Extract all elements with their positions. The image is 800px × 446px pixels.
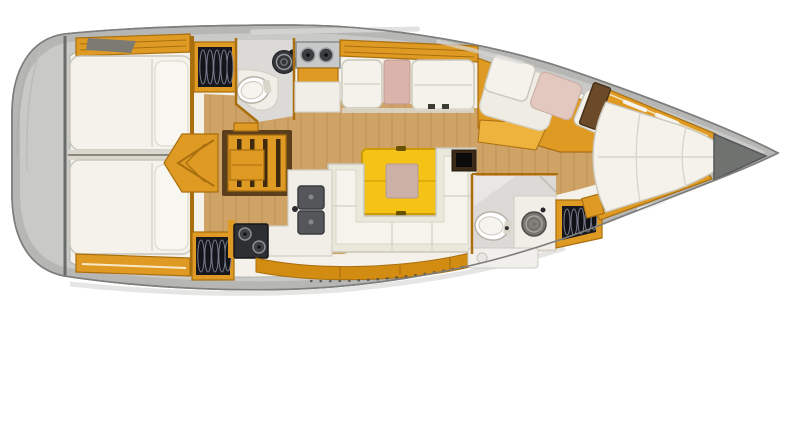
boat-floor-plan	[0, 0, 800, 446]
galley-oven	[234, 224, 268, 258]
sink-drain-1	[309, 195, 314, 200]
galley-faucet	[292, 206, 298, 212]
saloon-table	[362, 146, 440, 216]
galley-stove-unit	[295, 42, 340, 112]
hanger-row	[200, 50, 233, 84]
locker-handle-2	[442, 104, 449, 109]
companionway	[164, 123, 292, 196]
stove-side-counter	[295, 82, 340, 112]
burner-dot-2	[257, 245, 260, 248]
stove-locker	[298, 68, 338, 82]
hanging-wardrobe-port	[194, 42, 236, 92]
companionway-sill	[234, 123, 258, 131]
locker-handle	[428, 104, 435, 109]
hanger-row-2	[198, 240, 231, 272]
sink-drain-2	[309, 220, 314, 225]
settee-cushion-pink	[384, 60, 410, 104]
floor-plan-canvas	[0, 0, 800, 446]
pillow-port	[155, 61, 188, 146]
faucet-2	[541, 208, 546, 213]
table-inset	[386, 164, 418, 198]
aft-head	[235, 38, 296, 122]
table-latch-top	[396, 146, 406, 151]
settee-front-shadow	[342, 108, 474, 113]
saloon-settee-port	[340, 40, 478, 113]
burner-dot-1	[243, 232, 246, 235]
hanging-wardrobe-starboard	[192, 232, 234, 280]
chart-plotter-screen	[456, 153, 472, 167]
